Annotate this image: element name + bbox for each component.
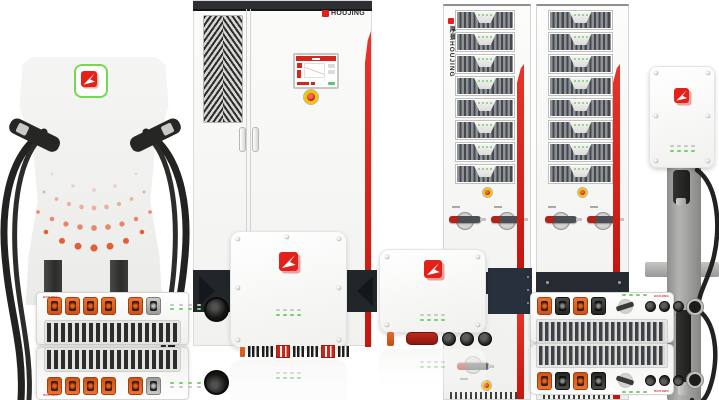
status-dot: [134, 217, 139, 222]
ventilation-grille: [44, 347, 181, 372]
emergency-stop-button: [304, 90, 318, 104]
rack-module-slot: [548, 120, 613, 140]
power-lug-red: [406, 332, 438, 345]
brand-logo-icon: [279, 252, 298, 271]
brand-logo-icon: [448, 18, 454, 24]
wall-mounted-charger: [379, 249, 486, 333]
dc-connector-black: [591, 372, 606, 390]
emergency-stop-button: [483, 188, 492, 197]
dc-connector-orange: [65, 297, 80, 315]
dc-connector-orange: [101, 377, 116, 395]
rectifier-module: HOUJING: [36, 347, 189, 400]
dc-connector-orange: [47, 297, 62, 315]
cable-gland: [478, 332, 492, 346]
rack-module-slot: [455, 32, 515, 52]
red-accent-stripe: [517, 64, 524, 272]
rack-base-band: [536, 272, 629, 294]
dc-connector-black: [591, 297, 606, 315]
status-led-indicators: [649, 145, 715, 152]
mounting-rail: [344, 270, 377, 312]
rack-module-slot: [455, 76, 515, 96]
rack-module-slots: [548, 10, 613, 186]
ventilation-grille: [44, 320, 181, 345]
status-dot: [59, 238, 65, 244]
mounting-rail: [488, 268, 532, 314]
rotary-knob: [618, 299, 633, 314]
status-dot: [107, 243, 114, 250]
dc-connector-gray: [146, 377, 161, 395]
door-handle: [252, 127, 259, 152]
status-dot: [148, 210, 152, 214]
rack-module-slots: [455, 10, 515, 186]
rack-module-slot: [455, 142, 515, 162]
ventilation-grille: [536, 343, 668, 368]
compact-module: HOUJING: [530, 344, 674, 395]
status-dot: [50, 217, 55, 222]
status-dot: [104, 205, 109, 210]
dc-connector-orange: [101, 297, 116, 315]
status-dot: [43, 191, 46, 194]
cooling-fan: [204, 370, 229, 395]
status-dot: [55, 197, 59, 201]
rack-module-slot: [455, 54, 515, 74]
status-dot: [143, 191, 146, 194]
status-dot: [91, 225, 97, 231]
status-dot: [117, 202, 121, 206]
round-port: [645, 375, 656, 386]
rack-module-slot: [548, 142, 613, 162]
wall-charger-reflection: [230, 360, 347, 400]
brand-logo-green-ring: [74, 64, 108, 98]
brand-wordmark: HOUJING: [322, 10, 365, 17]
dc-connector-orange: [65, 377, 80, 395]
round-port: [673, 301, 684, 312]
gun-connector-tip: [676, 198, 686, 205]
status-dot: [71, 184, 74, 187]
rack-module-slot: [455, 164, 515, 184]
spacer: [397, 331, 403, 346]
brand-logo-icon: [81, 71, 97, 87]
wall-mounted-charger: [230, 231, 347, 348]
rack-module-slot: [548, 76, 613, 96]
module-led-indicators: [170, 304, 201, 310]
brand-logo-icon: [674, 88, 689, 103]
round-port: [659, 375, 670, 386]
dc-connector-orange: [537, 297, 552, 315]
bottom-connector-strip: [240, 345, 341, 358]
round-port: [645, 301, 656, 312]
cable-gland: [442, 332, 456, 346]
ventilation-grille: [536, 319, 668, 344]
herringbone-vent-grille: [203, 15, 243, 123]
rack-module-slot: [548, 10, 613, 30]
wall-charger-reflection: [379, 349, 486, 399]
rectifier-module-stack: HOUJING HOUJING: [36, 292, 189, 399]
emergency-stop-button: [578, 188, 587, 197]
door-handle: [239, 127, 246, 152]
rack-module-slot: [548, 32, 613, 52]
status-dot: [90, 244, 97, 251]
status-dot: [92, 188, 96, 192]
status-dot: [119, 221, 124, 226]
status-dot: [92, 206, 97, 211]
terminal-pins: [262, 346, 273, 357]
dc-connector-orange: [128, 377, 143, 395]
dc-connector-black: [555, 297, 570, 315]
signal-terminal-orange: [240, 347, 245, 357]
compact-module: HOUJING: [530, 292, 674, 343]
wall-mounted-charger: [649, 66, 715, 168]
status-led-indicators: [379, 314, 486, 321]
cable-gland: [460, 332, 474, 346]
rack-module-slot: [548, 164, 613, 184]
signal-terminal-orange: [387, 332, 394, 346]
brand-logo-icon: [424, 260, 442, 278]
red-accent-stripe: [613, 64, 620, 272]
dc-connector-orange: [128, 297, 143, 315]
dc-connector-orange: [83, 377, 98, 395]
compact-module-pair: HOUJING HOUJING: [530, 292, 674, 393]
connector-row: [537, 371, 668, 390]
status-dot: [44, 230, 49, 235]
dc-connector-orange: [573, 297, 588, 315]
rack-module-slot: [548, 98, 613, 118]
module-led-indicators: [170, 382, 201, 388]
status-dot: [67, 202, 71, 206]
product-showcase: HOUJING HOUJING HOUJING: [0, 0, 719, 400]
status-dot: [75, 243, 82, 250]
rotary-knob: [618, 373, 633, 388]
rectifier-module: HOUJING: [36, 292, 189, 345]
rack-module-slot: [455, 10, 515, 30]
round-port: [673, 375, 684, 386]
cooling-fan: [204, 297, 229, 322]
status-dot: [63, 221, 68, 226]
terminal-pins: [307, 346, 318, 357]
status-dot: [140, 230, 145, 235]
terminal-pins: [293, 346, 304, 357]
hmi-touchscreen: [293, 53, 339, 89]
charging-gun: [676, 310, 691, 384]
rack-module-slot: [455, 98, 515, 118]
dc-connector-orange: [573, 372, 588, 390]
round-port-large: [687, 299, 703, 315]
status-dot: [135, 173, 137, 175]
dc-connector-orange: [83, 297, 98, 315]
terminal-pins: [338, 346, 349, 357]
dc-connector-black: [555, 372, 570, 390]
red-accent-stripe: [517, 306, 524, 399]
status-dot: [105, 224, 111, 230]
status-led-indicators: [230, 309, 347, 316]
status-dot: [77, 224, 83, 230]
status-dot: [51, 173, 53, 175]
connector-row: [47, 375, 183, 395]
connector-row: [47, 297, 183, 317]
status-dot: [79, 205, 84, 210]
dc-connector-gray: [146, 297, 161, 315]
status-dot: [123, 238, 129, 244]
dc-connector-orange: [47, 377, 62, 395]
round-port: [659, 301, 670, 312]
status-dot: [130, 197, 134, 201]
terminal-block-red: [276, 345, 290, 358]
brand-logo-icon: [322, 10, 329, 17]
terminal-pins: [248, 346, 259, 357]
bottom-connector-strip: [387, 331, 480, 346]
dc-connector-orange: [537, 372, 552, 390]
connector-row: [537, 297, 668, 316]
status-dot: [36, 210, 40, 214]
terminal-block-red: [321, 345, 335, 358]
rack-module-slot: [455, 120, 515, 140]
status-dot: [113, 184, 116, 187]
rack-module-slot: [548, 54, 613, 74]
status-dot-arcs: [18, 168, 170, 258]
